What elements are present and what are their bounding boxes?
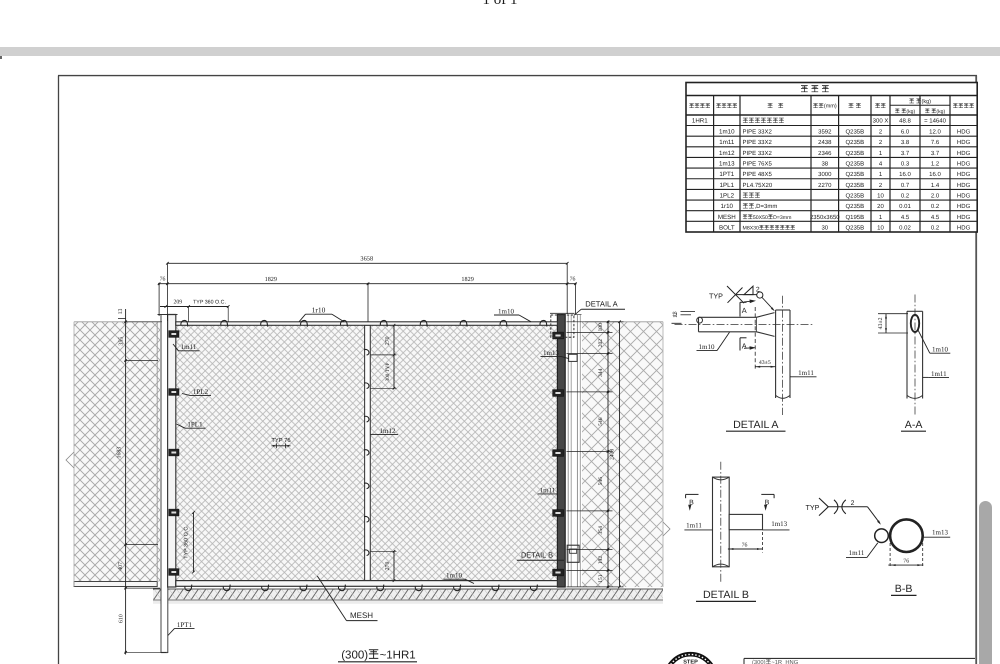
- svg-text:BOLT: BOLT: [719, 224, 735, 231]
- svg-text:D=3mm: D=3mm: [773, 215, 791, 221]
- svg-text:20: 20: [877, 203, 884, 210]
- svg-text:HDG: HDG: [957, 192, 971, 199]
- svg-text:1PL2: 1PL2: [193, 388, 209, 396]
- svg-text:DETAIL B: DETAIL B: [703, 589, 749, 601]
- svg-text:1m11: 1m11: [931, 370, 947, 378]
- svg-text:0.2: 0.2: [931, 203, 940, 210]
- svg-text:300 TYP: 300 TYP: [385, 362, 391, 381]
- svg-text:3.7: 3.7: [901, 150, 910, 157]
- svg-text:1PT1: 1PT1: [177, 621, 193, 629]
- svg-text:1.2: 1.2: [931, 161, 940, 168]
- svg-text:Q235B: Q235B: [845, 161, 864, 168]
- svg-text:1683: 1683: [117, 447, 123, 459]
- svg-text:1m11: 1m11: [798, 369, 814, 377]
- svg-text:76: 76: [903, 558, 909, 564]
- svg-text:Q235B: Q235B: [845, 182, 864, 189]
- svg-text:0.3: 0.3: [901, 161, 910, 168]
- svg-text:1m13: 1m13: [543, 349, 559, 357]
- svg-text:A: A: [742, 306, 747, 315]
- svg-text:4.5: 4.5: [931, 214, 940, 221]
- svg-text:B-B: B-B: [895, 583, 913, 595]
- svg-text:4.5: 4.5: [901, 214, 910, 221]
- svg-text:1m11: 1m11: [540, 486, 556, 494]
- svg-text:TYP 360 O.C.: TYP 360 O.C.: [193, 300, 226, 306]
- svg-text:16.0: 16.0: [929, 171, 941, 178]
- svg-text:PIPE 48X5: PIPE 48X5: [743, 171, 773, 178]
- svg-text:1m13: 1m13: [771, 520, 787, 528]
- svg-text:Q235B: Q235B: [845, 192, 864, 199]
- svg-text:= 14640: = 14640: [924, 118, 947, 125]
- svg-text:1r10: 1r10: [721, 203, 734, 210]
- svg-text:(kg): (kg): [922, 99, 932, 105]
- svg-text:PL4.75X20: PL4.75X20: [743, 182, 773, 189]
- svg-text:43±5: 43±5: [759, 360, 771, 366]
- svg-text:1m10: 1m10: [719, 129, 735, 136]
- svg-text:1HR1: 1HR1: [692, 118, 708, 125]
- svg-text:344: 344: [598, 368, 604, 377]
- svg-text:STEP: STEP: [683, 660, 698, 664]
- svg-text:16.0: 16.0: [899, 171, 911, 178]
- svg-text:0.2: 0.2: [901, 192, 910, 199]
- svg-text:2270: 2270: [818, 182, 832, 189]
- svg-text:~1HR1: ~1HR1: [380, 649, 416, 661]
- svg-text:Q235B: Q235B: [845, 139, 864, 146]
- svg-text:1m12: 1m12: [380, 427, 396, 435]
- svg-text:38: 38: [821, 161, 828, 168]
- svg-text:TYP 360 O.C.: TYP 360 O.C.: [184, 525, 190, 558]
- svg-text:209: 209: [173, 300, 182, 306]
- svg-text:2350x3650: 2350x3650: [810, 214, 840, 221]
- svg-text:1m13: 1m13: [719, 161, 735, 168]
- svg-text:TYP: TYP: [806, 503, 820, 512]
- svg-text:610: 610: [119, 614, 125, 623]
- svg-text:2346: 2346: [818, 150, 832, 157]
- svg-text:1PL2: 1PL2: [720, 192, 735, 199]
- svg-text:270: 270: [385, 562, 391, 571]
- svg-text:Q235B: Q235B: [845, 224, 864, 231]
- svg-text:Q235B: Q235B: [845, 203, 864, 210]
- svg-text:(kg): (kg): [936, 109, 945, 115]
- svg-text:HDG: HDG: [957, 129, 971, 136]
- svg-text:12.0: 12.0: [929, 129, 941, 136]
- svg-text:HDG: HDG: [957, 139, 971, 146]
- svg-text:(300): (300): [341, 649, 368, 661]
- svg-text:76: 76: [742, 542, 748, 548]
- svg-text:Q195B: Q195B: [845, 214, 864, 221]
- svg-text:HDG: HDG: [957, 171, 971, 178]
- svg-text:3658: 3658: [360, 255, 373, 262]
- svg-text:3592: 3592: [818, 129, 832, 136]
- svg-text:1m10: 1m10: [498, 307, 514, 315]
- svg-text:2438: 2438: [818, 139, 832, 146]
- svg-text:DETAIL A: DETAIL A: [733, 419, 779, 431]
- svg-text:PIPE 33X2: PIPE 33X2: [743, 139, 773, 146]
- svg-text:1.4: 1.4: [931, 182, 940, 189]
- svg-text:6.0: 6.0: [901, 129, 910, 136]
- svg-text:TYP 76: TYP 76: [271, 437, 290, 444]
- svg-text:7.6: 7.6: [931, 139, 940, 146]
- svg-text:A: A: [742, 341, 747, 350]
- svg-text:151: 151: [598, 574, 604, 583]
- svg-text:PIPE 33X2: PIPE 33X2: [743, 129, 773, 136]
- svg-text:76: 76: [160, 277, 166, 283]
- svg-text:300 X: 300 X: [873, 118, 889, 125]
- svg-text:354: 354: [598, 526, 604, 535]
- svg-text:HDG: HDG: [957, 224, 971, 231]
- svg-text:1829: 1829: [461, 276, 473, 283]
- svg-text:30: 30: [821, 224, 828, 231]
- svg-text:10: 10: [877, 224, 884, 231]
- svg-text:1m11: 1m11: [181, 343, 197, 351]
- svg-text:3000: 3000: [818, 171, 832, 178]
- svg-text:TYP: TYP: [709, 291, 723, 300]
- svg-text:0.01: 0.01: [899, 203, 911, 210]
- svg-text:12: 12: [673, 312, 679, 318]
- svg-text:HDG: HDG: [957, 161, 971, 168]
- svg-text:270: 270: [385, 336, 391, 345]
- svg-text:1r10: 1r10: [312, 306, 326, 315]
- svg-text:10: 10: [877, 192, 884, 199]
- svg-text:MESH: MESH: [718, 214, 736, 221]
- svg-text:A-A: A-A: [905, 419, 924, 431]
- svg-text:546: 546: [598, 477, 604, 486]
- svg-text:DETAIL B: DETAIL B: [521, 551, 553, 560]
- svg-text:1m11: 1m11: [686, 521, 702, 529]
- svg-text:Q235B: Q235B: [845, 150, 864, 157]
- svg-text:Q235B: Q235B: [845, 129, 864, 136]
- svg-text:0.2: 0.2: [931, 224, 940, 231]
- svg-text:(mm): (mm): [824, 104, 837, 110]
- svg-text:,D=3mm: ,D=3mm: [755, 203, 778, 210]
- svg-text:50X50: 50X50: [753, 215, 768, 221]
- svg-text:355: 355: [119, 337, 125, 346]
- svg-text:HDG: HDG: [957, 182, 971, 189]
- svg-text:Q235B: Q235B: [845, 171, 864, 178]
- svg-text:~1R HNG: ~1R HNG: [771, 659, 798, 664]
- svg-text:1m12: 1m12: [719, 150, 735, 157]
- svg-text:1PL1: 1PL1: [720, 182, 735, 189]
- svg-text:MESH: MESH: [350, 611, 373, 620]
- svg-text:1PT1: 1PT1: [719, 171, 734, 178]
- svg-text:2438: 2438: [610, 449, 616, 460]
- svg-text:202: 202: [598, 339, 604, 348]
- svg-text:43±2: 43±2: [878, 317, 884, 329]
- svg-text:PIPE 76X5: PIPE 76X5: [743, 161, 773, 168]
- svg-text:1m10: 1m10: [446, 572, 462, 580]
- svg-text:100: 100: [598, 323, 604, 332]
- svg-text:2: 2: [851, 500, 855, 507]
- svg-text:0.7: 0.7: [901, 182, 910, 189]
- svg-text:PIPE 33X2: PIPE 33X2: [743, 150, 773, 157]
- svg-text:1m11: 1m11: [719, 139, 735, 146]
- svg-text:1m10: 1m10: [932, 346, 948, 354]
- svg-text:HDG: HDG: [957, 150, 971, 157]
- svg-text:546: 546: [598, 417, 604, 426]
- svg-text:76: 76: [570, 277, 576, 283]
- svg-text:M8X30: M8X30: [743, 225, 760, 231]
- svg-text:407: 407: [118, 562, 124, 571]
- svg-text:0.02: 0.02: [899, 224, 911, 231]
- svg-text:48.8: 48.8: [899, 118, 911, 125]
- svg-text:1m11: 1m11: [849, 549, 865, 557]
- svg-text:1m13: 1m13: [932, 529, 948, 537]
- svg-text:3.8: 3.8: [901, 139, 910, 146]
- svg-text:HDG: HDG: [957, 214, 971, 221]
- svg-text:13: 13: [118, 309, 124, 315]
- svg-text:(300): (300): [752, 659, 766, 664]
- svg-text:(kg): (kg): [906, 109, 915, 115]
- svg-text:2.0: 2.0: [931, 192, 940, 199]
- svg-text:HDG: HDG: [957, 203, 971, 210]
- svg-text:1829: 1829: [265, 276, 277, 283]
- svg-text:192: 192: [598, 556, 604, 565]
- svg-text:1m10: 1m10: [699, 343, 715, 351]
- svg-text:1PL1: 1PL1: [187, 421, 203, 429]
- svg-text:DETAIL A: DETAIL A: [585, 300, 618, 309]
- svg-text:3.7: 3.7: [931, 150, 940, 157]
